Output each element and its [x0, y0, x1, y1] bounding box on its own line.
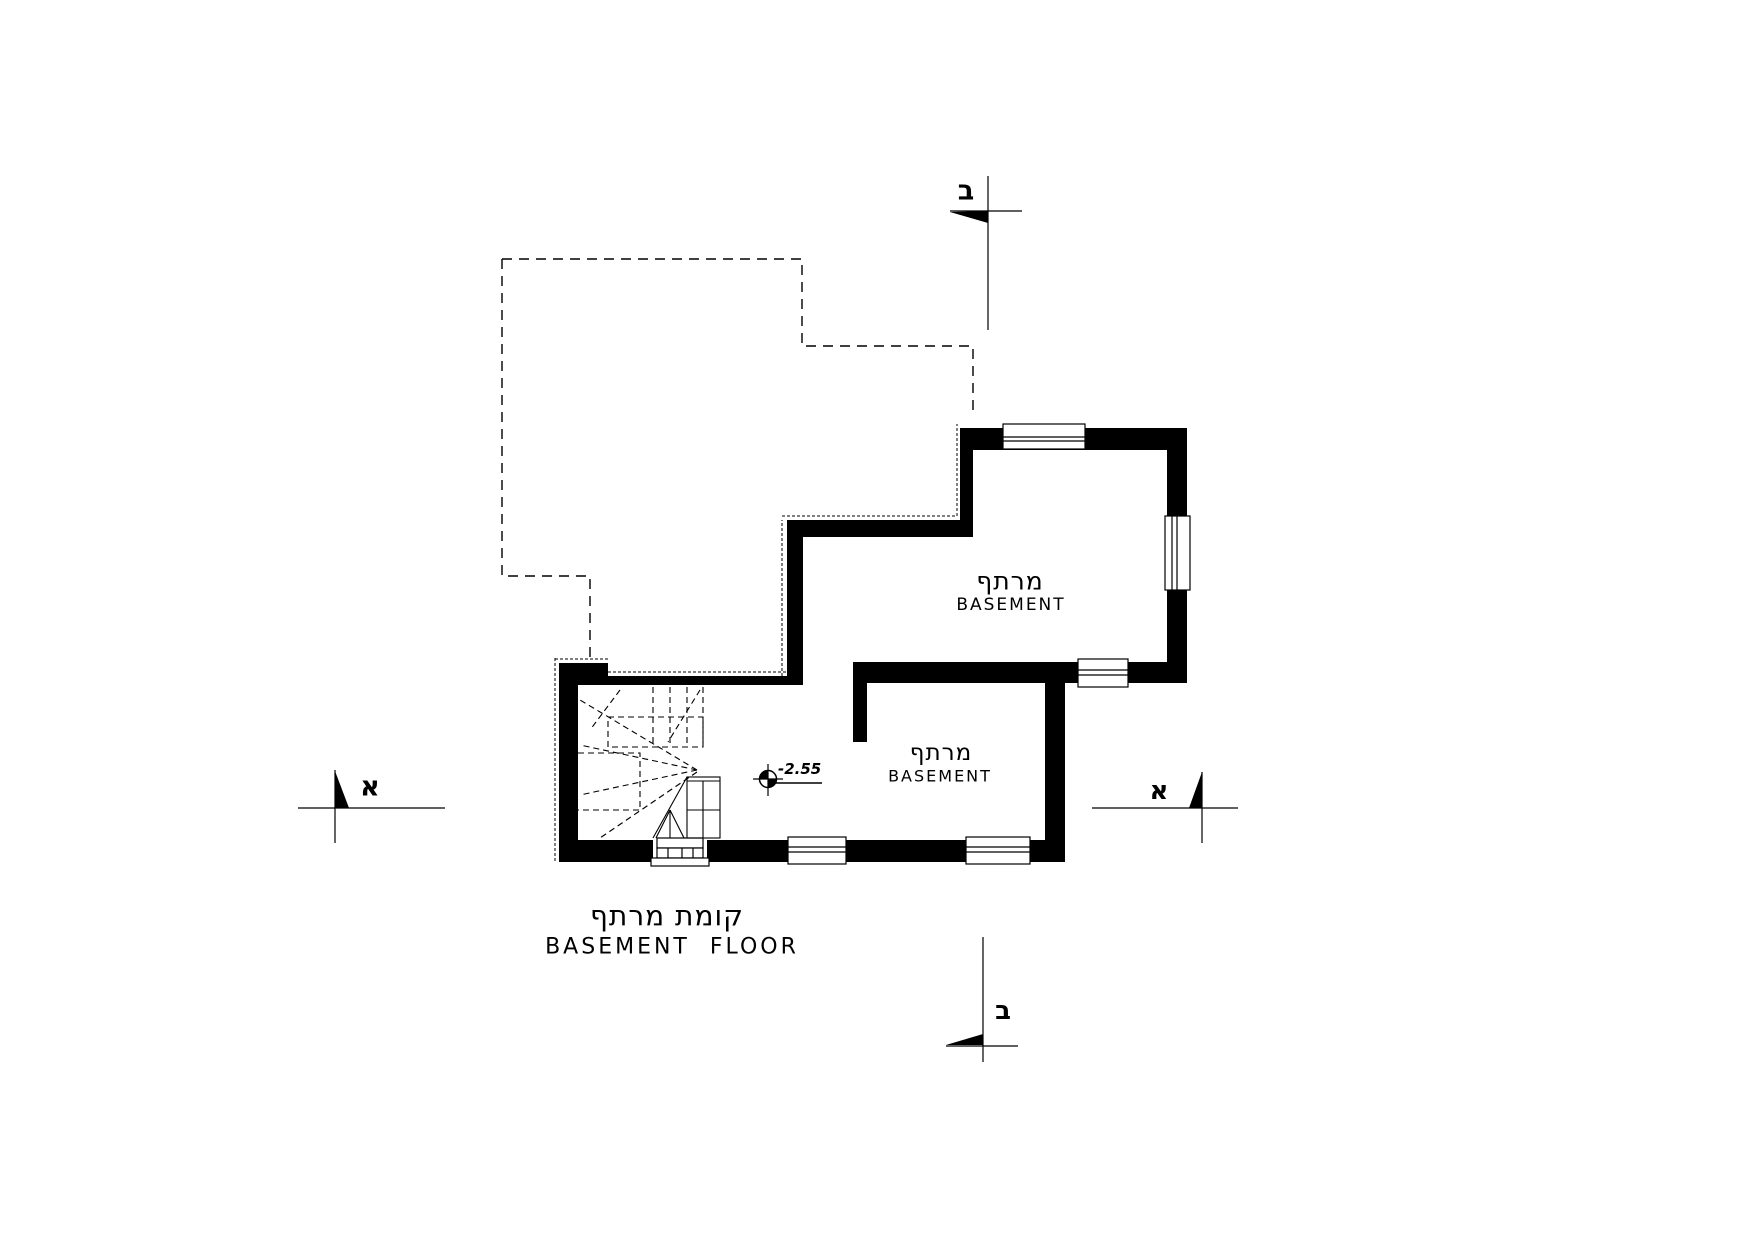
waterproofing-lines: [555, 424, 957, 862]
wall-left: [559, 685, 578, 862]
section-letter-bottom: ב: [995, 996, 1011, 1026]
room-label-lower-basement-en: BASEMENT: [888, 767, 992, 786]
upper-floor-projection-outline: [502, 259, 973, 660]
entry-steps: [651, 838, 709, 866]
wall-lower-right: [1045, 683, 1065, 862]
window-right: [1165, 516, 1190, 590]
wall-bottom-2: [707, 840, 788, 862]
wall-mid-vertical: [787, 537, 803, 685]
plan-title-hebrew: קומת מרתף: [590, 900, 744, 933]
wall-stair-top-left: [559, 663, 608, 685]
walls: [559, 428, 1187, 862]
wall-stub: [853, 662, 867, 742]
stair-flight-solid: [653, 777, 720, 838]
wall-bottom-3: [846, 840, 966, 862]
section-letter-left: א: [360, 772, 380, 803]
staircase: [578, 687, 720, 838]
plan-title-english: BASEMENT FLOOR: [545, 935, 799, 960]
wall-band-right: [1128, 662, 1187, 683]
windows: [788, 424, 1190, 864]
section-letter-right: א: [1150, 776, 1169, 806]
window-bottom-left: [788, 837, 846, 864]
wall-bottom-1: [559, 840, 653, 862]
floor-plan-sheet: מרתף BASEMENT מרתף BASEMENT קומת מרתף BA…: [0, 0, 1754, 1240]
section-markers: [298, 176, 1238, 1062]
window-bottom-right: [966, 837, 1030, 864]
floor-plan-drawing: [0, 0, 1754, 1240]
wall-mid-horizontal: [787, 520, 973, 537]
wall-bottom-4: [1030, 840, 1065, 862]
wall-band-left: [853, 662, 1078, 683]
level-value-label: -2.55: [778, 760, 821, 778]
room-label-upper-basement-en: BASEMENT: [956, 595, 1065, 615]
window-mid: [1078, 659, 1128, 687]
stair-winders-dashed: [578, 687, 703, 838]
room-label-upper-basement-he: מרתף: [976, 567, 1044, 596]
window-top: [1003, 424, 1085, 449]
room-label-lower-basement-he: מרתף: [910, 740, 972, 766]
section-letter-top: ב: [958, 176, 974, 207]
wall-stair-top-right: [608, 676, 787, 685]
